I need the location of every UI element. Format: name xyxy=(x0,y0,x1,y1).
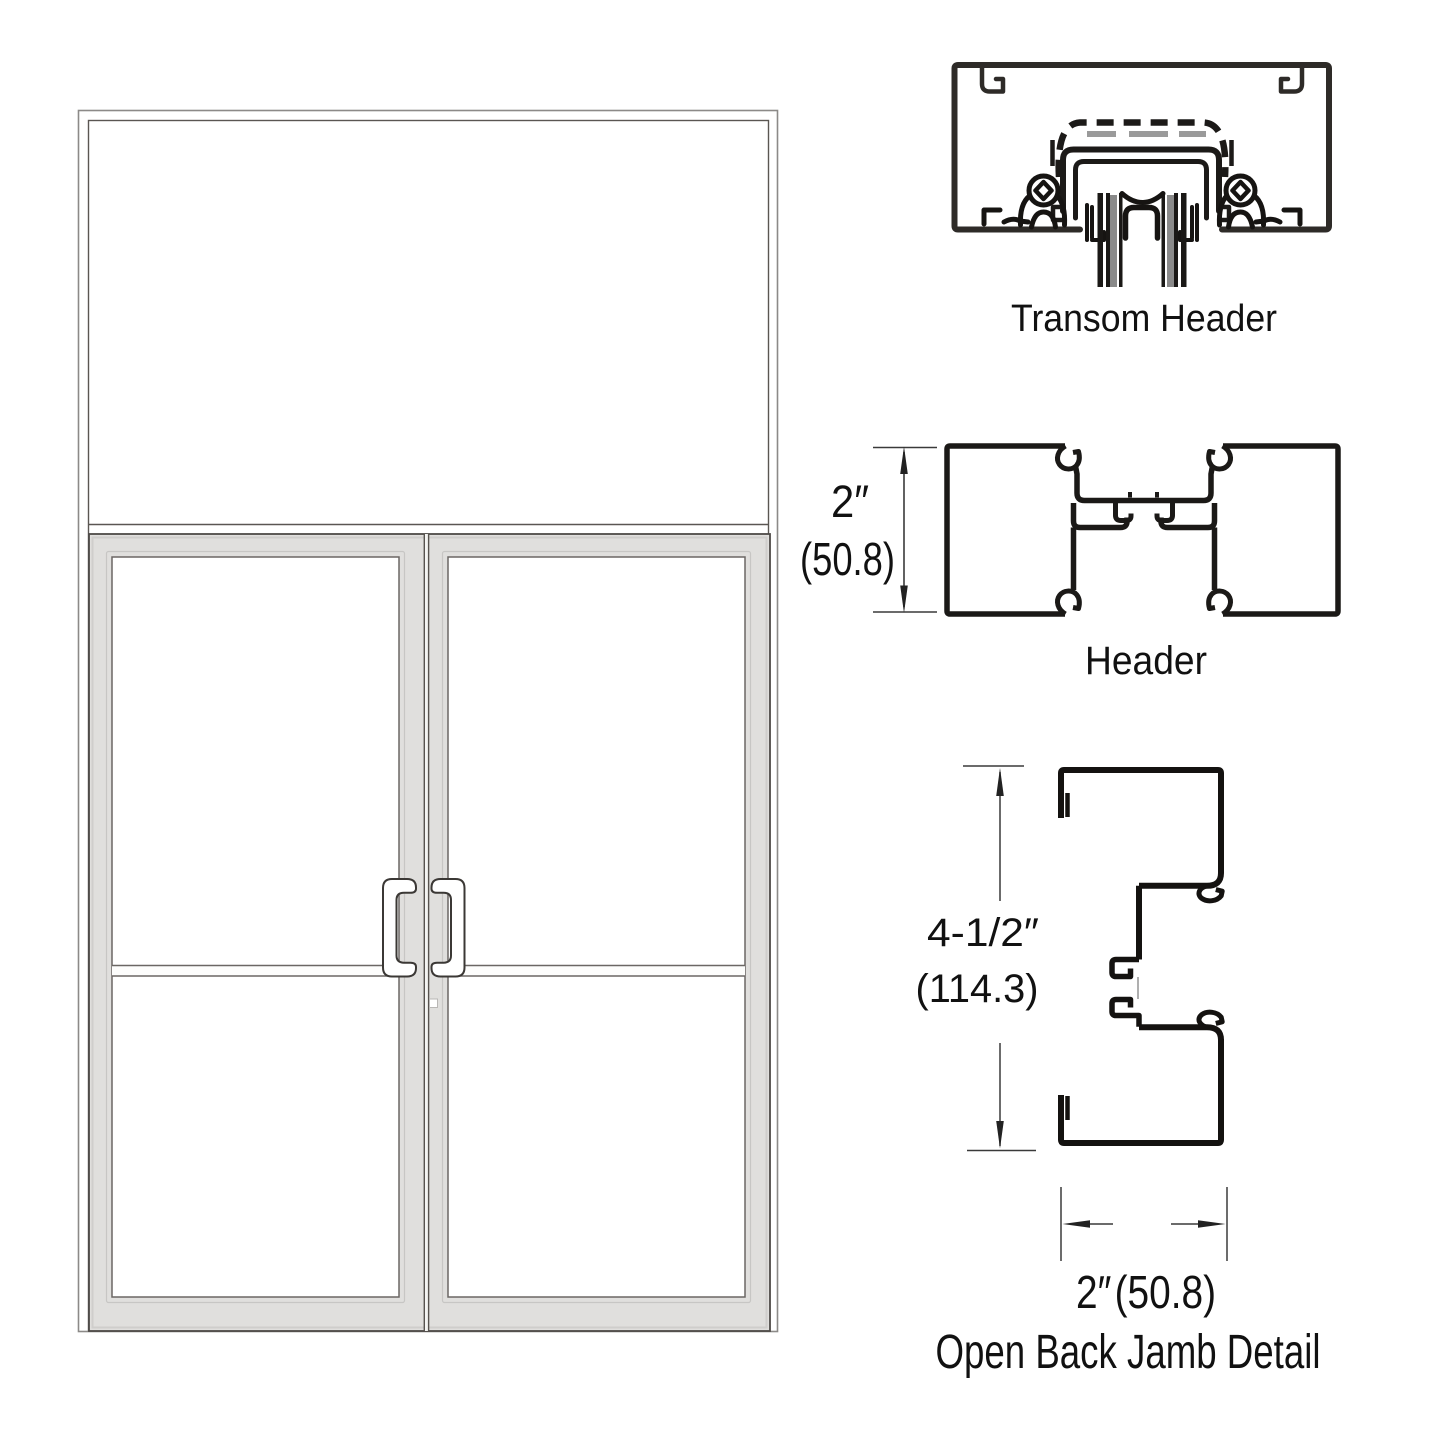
svg-text:Transom Header: Transom Header xyxy=(1011,298,1277,340)
svg-text:(114.3): (114.3) xyxy=(916,967,1039,1011)
svg-text:2″ (50.8): 2″ (50.8) xyxy=(1076,1266,1216,1318)
svg-text:(50.8): (50.8) xyxy=(800,533,895,585)
svg-text:Header: Header xyxy=(1085,639,1207,683)
svg-text:Open Back Jamb Detail: Open Back Jamb Detail xyxy=(936,1326,1321,1379)
svg-text:4-1/2″: 4-1/2″ xyxy=(927,911,1039,955)
svg-text:2″: 2″ xyxy=(831,476,869,527)
